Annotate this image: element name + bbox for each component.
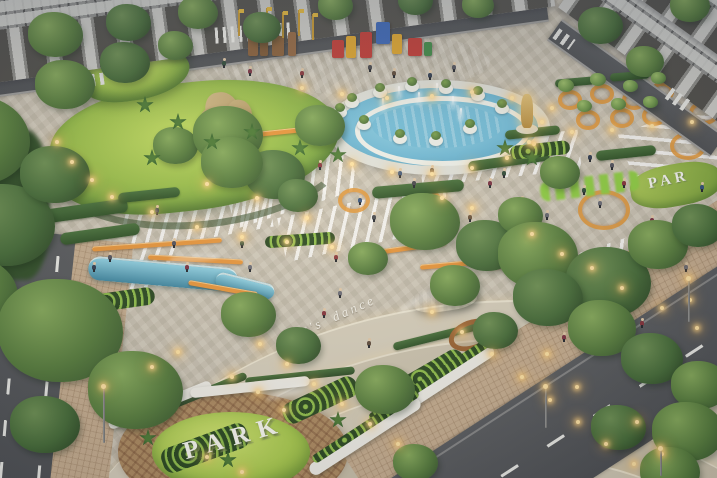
tree-canopy [577,100,592,112]
person-figure [108,252,112,262]
person-figure [185,262,189,272]
path-light [490,352,494,356]
path-light [110,195,114,199]
path-light [470,166,474,170]
path-light [576,420,580,424]
play-equipment [424,42,432,56]
person-figure [622,178,626,188]
path-light [575,385,579,389]
tree-canopy [348,242,388,275]
path-light [205,455,209,459]
path-light [460,330,464,334]
tree-canopy [611,98,626,110]
flag-pole [282,12,284,38]
tree-canopy [278,179,318,212]
person-figure [545,210,549,220]
path-light [660,306,664,310]
fountain-jet [452,96,454,108]
path-light [256,390,260,394]
pool-planter-foliage [407,77,417,86]
path-light [285,362,289,366]
person-figure [610,160,614,170]
path-light [205,182,209,186]
person-figure [700,182,704,192]
path-light [632,462,636,466]
path-light [150,210,154,214]
circle-planter-ring [610,108,634,128]
person-figure [452,62,456,72]
street-lamp-pole [660,450,662,476]
person-figure [338,288,342,298]
person-figure [240,238,244,248]
golden-statue [521,94,533,128]
pool-planter-foliage [441,79,451,88]
person-figure [248,262,252,272]
play-equipment [392,34,402,54]
tree-canopy [643,96,658,108]
path-light [510,96,514,100]
street-lamp-light [686,276,691,281]
path-light [70,160,74,164]
path-light [305,216,309,220]
tree-canopy [20,146,90,203]
person-figure [367,338,371,348]
person-figure [468,212,472,222]
path-light [505,156,509,160]
tree-canopy [100,42,150,83]
tree-canopy [276,327,321,364]
path-light [530,232,534,236]
flag-pole [298,10,300,36]
play-equipment [288,32,296,56]
fountain-jet [418,92,420,104]
street-lamp-pole [545,388,547,428]
circle-planter-ring [338,188,370,213]
path-light [390,170,394,174]
person-figure [428,70,432,80]
pool-planter-foliage [359,115,369,124]
path-light [396,442,400,446]
path-light [176,350,180,354]
person-figure [562,332,566,342]
person-figure [172,238,176,248]
path-light [470,90,474,94]
path-light [520,375,524,379]
path-light [300,86,304,90]
tree-canopy [393,444,438,478]
flag-pole [238,10,240,36]
tree-canopy [390,193,460,250]
person-figure [334,252,338,262]
path-light [55,140,59,144]
path-light [695,326,699,330]
person-figure [582,185,586,195]
path-light [385,96,389,100]
tree-canopy [672,204,717,247]
path-light [350,162,354,166]
tree-canopy [153,127,198,164]
pool-planter-foliage [473,86,483,95]
path-light [285,240,289,244]
flag-pole [312,14,314,40]
path-light [340,402,344,406]
path-light [430,172,434,176]
person-figure [368,62,372,72]
path-light [312,382,316,386]
tree-canopy [158,31,193,60]
person-figure [322,308,326,318]
tree-canopy [178,0,218,29]
fountain-jet [398,86,400,98]
path-light [690,120,694,124]
fountain-jet [436,83,438,95]
park-render: PARK PAR let's dance [0,0,717,478]
path-light [540,120,544,124]
path-light [548,398,552,402]
path-light [570,130,574,134]
tree-canopy [35,60,95,109]
person-figure [372,212,376,222]
pool-planter-foliage [497,99,507,108]
tree-canopy [651,72,666,84]
path-light [470,206,474,210]
path-light [340,92,344,96]
path-light [255,196,259,200]
fountain-jet [460,108,462,120]
tree-canopy [295,105,345,146]
path-light [230,375,234,379]
person-figure [588,152,592,162]
person-figure [640,318,644,328]
person-figure [488,178,492,188]
path-light [620,286,624,290]
pool-planter-foliage [395,129,405,138]
tree-canopy [355,365,415,414]
path-light [90,178,94,182]
path-light [604,442,608,446]
path-light [282,408,286,412]
person-figure [358,195,362,205]
street-lamp-light [101,384,106,389]
path-light [550,106,554,110]
street-lamp-pole [688,280,690,322]
path-light [590,266,594,270]
path-light [430,310,434,314]
tree-canopy [540,156,580,189]
path-light [150,365,154,369]
tree-canopy [473,312,518,349]
pool-planter-foliage [431,131,441,140]
tree-canopy [106,4,151,41]
play-equipment [346,36,356,58]
pool-planter-foliage [347,93,357,102]
tree-canopy [591,405,646,450]
person-figure [398,168,402,178]
path-light [635,420,639,424]
tree-canopy [430,265,480,306]
person-figure [222,58,226,68]
path-light [240,235,244,239]
fountain-jet [382,98,384,110]
person-figure [248,66,252,76]
path-light [527,140,531,144]
circle-planter-ring [576,110,600,130]
path-light [430,94,434,98]
person-figure [300,68,304,78]
path-light [650,124,654,128]
person-figure [684,262,688,272]
tree-canopy [623,80,638,92]
tree-canopy [578,7,623,44]
tree-canopy [28,12,83,57]
person-figure [92,262,96,272]
path-light [330,245,334,249]
tree-canopy [243,12,281,43]
path-light [545,352,549,356]
play-equipment [360,32,372,58]
pool-planter-foliage [465,119,475,128]
path-light [532,142,536,146]
tree-canopy [88,351,183,429]
street-lamp-light [658,446,663,451]
person-figure [598,198,602,208]
path-light [368,422,372,426]
path-light [240,470,244,474]
pool-planter-foliage [375,83,385,92]
street-lamp-pole [103,388,105,443]
path-light [440,196,444,200]
tree-canopy [10,396,80,453]
path-light [195,225,199,229]
person-figure [502,168,506,178]
person-figure [155,205,159,215]
person-figure [412,178,416,188]
path-light [258,342,262,346]
person-figure [318,160,322,170]
play-equipment [408,38,422,56]
tree-canopy [221,292,276,337]
play-equipment [376,22,390,44]
path-light [610,128,614,132]
street-lamp-light [543,384,548,389]
play-equipment [332,40,344,58]
path-light [560,252,564,256]
person-figure [392,68,396,78]
